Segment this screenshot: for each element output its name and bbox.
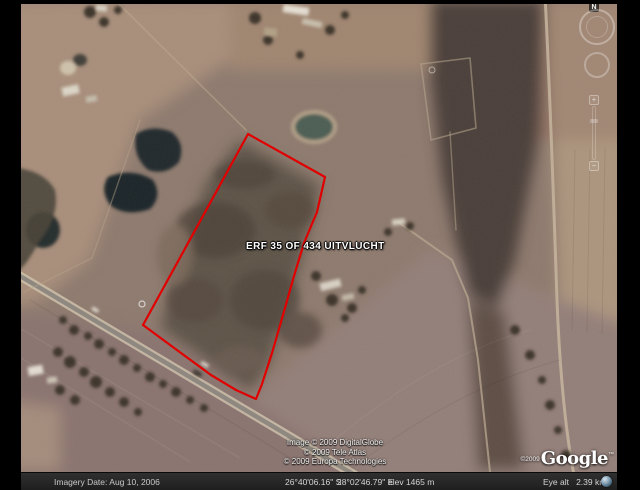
- zoom-out-button[interactable]: −: [589, 161, 599, 171]
- copyright-line: Image © 2009 DigitalGlobe: [235, 438, 435, 448]
- look-joystick[interactable]: [579, 9, 615, 45]
- status-bar: Imagery Date: Aug 10, 2006 26°40'06.16" …: [0, 472, 640, 490]
- map-viewport[interactable]: ERF 35 OF 434 UITVLUCHT Image © 2009 Dig…: [0, 0, 640, 490]
- placemark-label[interactable]: ERF 35 OF 434 UITVLUCHT: [246, 241, 385, 252]
- frame-border-left: [0, 0, 21, 490]
- longitude-readout: 28°02'46.79" E: [337, 477, 393, 487]
- frame-border-right: [617, 0, 640, 490]
- move-joystick[interactable]: [584, 52, 610, 78]
- zoom-in-button[interactable]: +: [589, 95, 599, 105]
- google-logo: Google: [541, 448, 608, 469]
- elevation-readout: elev 1465 m: [388, 477, 434, 487]
- streaming-progress-icon: [601, 476, 612, 487]
- copyright-attribution: Image © 2009 DigitalGlobe © 2009 Tele At…: [235, 438, 435, 467]
- eye-altitude-readout: Eye alt 2.39 km: [543, 477, 606, 487]
- google-earth-window: ERF 35 OF 434 UITVLUCHT Image © 2009 Dig…: [0, 0, 640, 490]
- look-joystick-inner-ring[interactable]: [586, 16, 608, 38]
- zoom-slider[interactable]: + −: [588, 95, 600, 171]
- trademark-symbol: ™: [608, 452, 614, 458]
- copyright-line: © 2009 Europa Technologies: [235, 457, 435, 467]
- zoom-slider-track[interactable]: [592, 106, 596, 160]
- frame-border-top: [0, 0, 640, 4]
- zoom-slider-handle[interactable]: [590, 119, 598, 123]
- imagery-date-label: Imagery Date: Aug 10, 2006: [54, 477, 160, 487]
- google-watermark: ©2009Google™: [520, 448, 614, 469]
- property-boundary-polygon[interactable]: [143, 134, 325, 399]
- copyright-line: © 2009 Tele Atlas: [235, 448, 435, 458]
- latitude-readout: 26°40'06.16" S: [285, 477, 341, 487]
- watermark-year: ©2009: [520, 456, 539, 463]
